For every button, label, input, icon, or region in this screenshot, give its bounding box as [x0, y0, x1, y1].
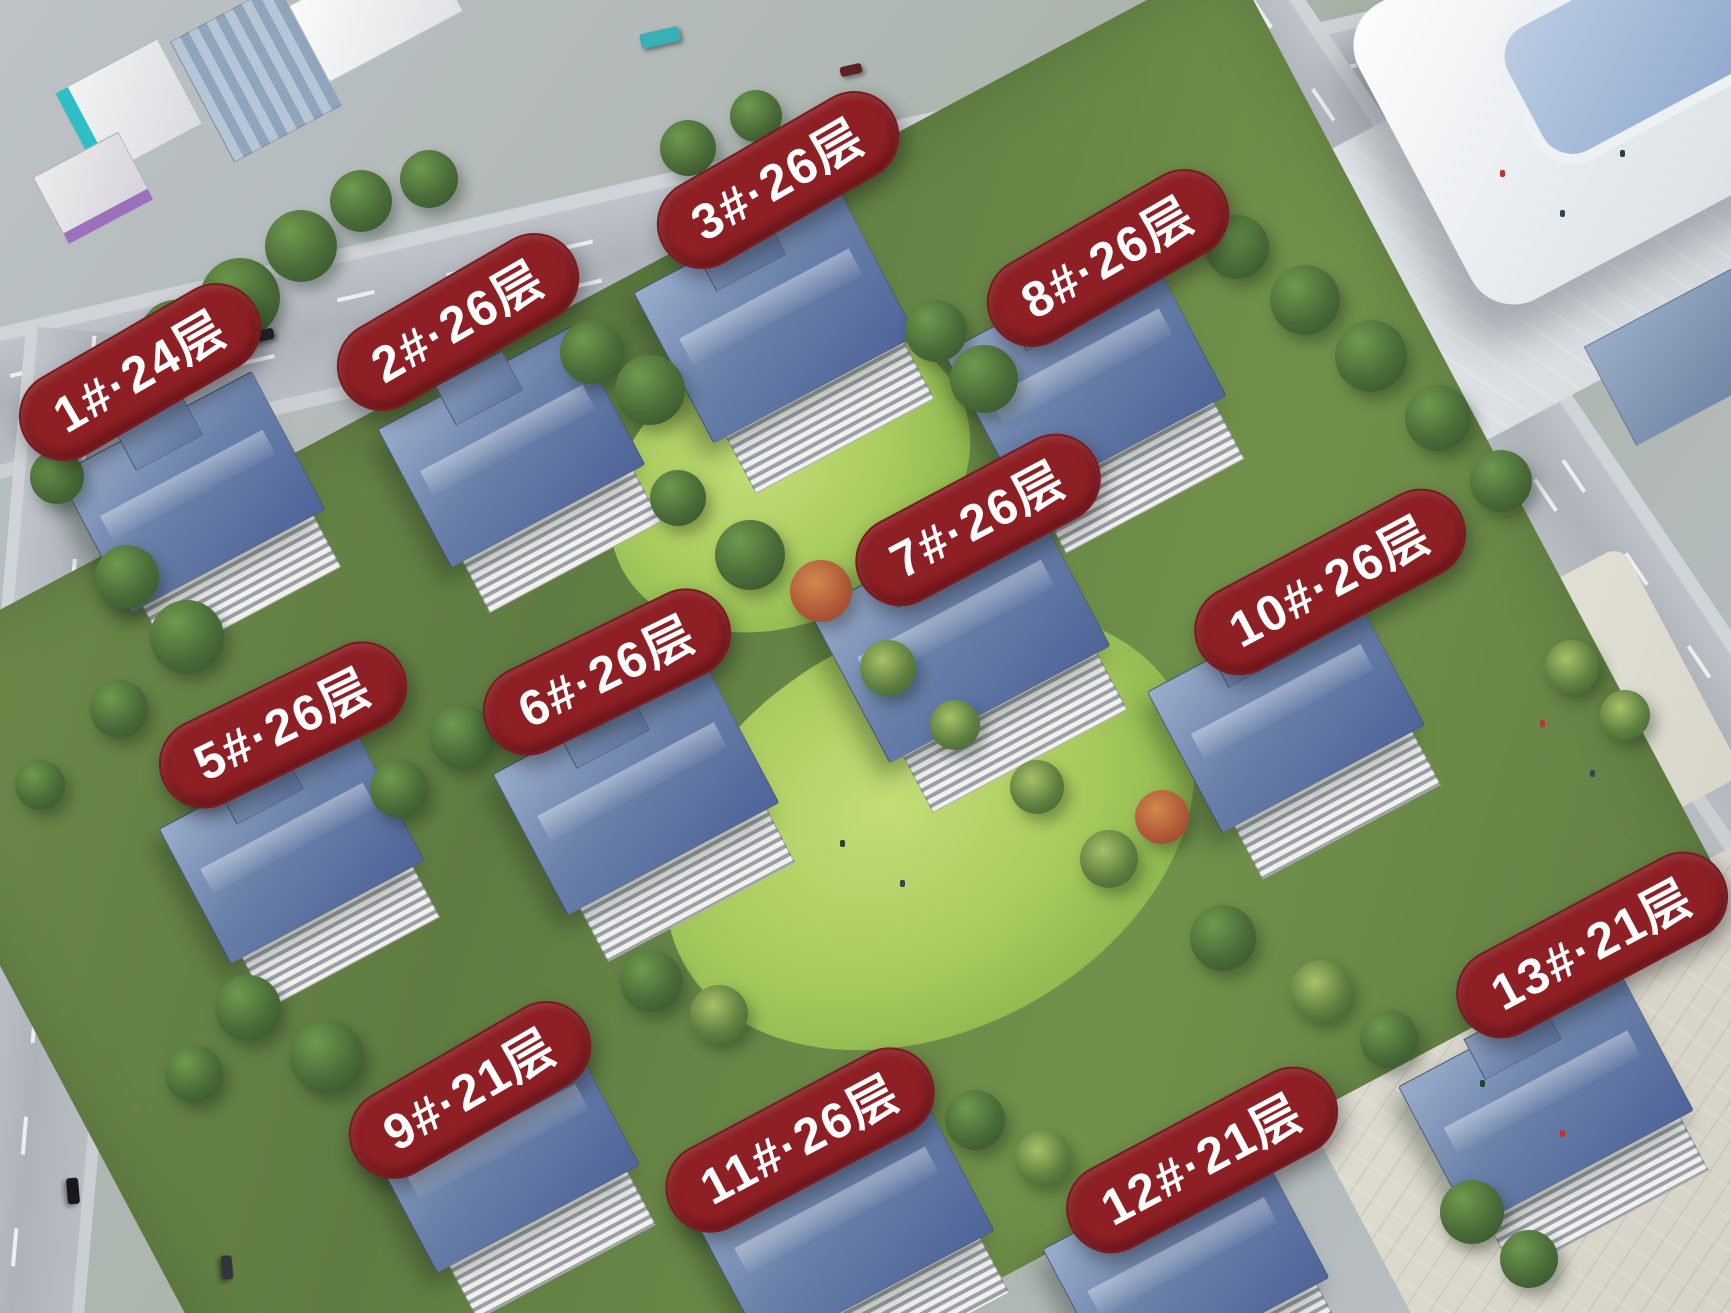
tree — [650, 470, 706, 526]
tree — [150, 600, 224, 674]
palm-tree — [1545, 640, 1599, 694]
tree — [715, 520, 785, 590]
tree — [615, 355, 685, 425]
pedestrian — [1500, 170, 1505, 177]
pedestrian — [1540, 720, 1545, 727]
tree — [330, 170, 392, 232]
pedestrian — [1590, 770, 1595, 777]
tree — [290, 1020, 364, 1094]
palm-tree — [1015, 1130, 1071, 1186]
car — [839, 63, 863, 78]
car — [220, 1255, 233, 1280]
palm-tree — [1010, 760, 1064, 814]
palm-tree — [1290, 960, 1352, 1022]
tree — [560, 320, 624, 384]
tree — [370, 760, 428, 818]
tree — [1360, 1010, 1418, 1068]
pedestrian — [1480, 1080, 1485, 1087]
tree — [1470, 450, 1532, 512]
palm-tree — [930, 700, 980, 750]
car — [66, 1178, 80, 1205]
pedestrian — [1560, 1130, 1565, 1137]
pedestrian — [840, 840, 845, 847]
tree — [1270, 265, 1340, 335]
tree — [165, 1045, 223, 1103]
tree — [215, 975, 281, 1041]
tree — [265, 210, 337, 282]
autumn-tree — [790, 560, 852, 622]
tree — [15, 760, 65, 810]
tree — [1190, 905, 1256, 971]
pedestrian — [1620, 150, 1625, 157]
tree — [1405, 385, 1471, 451]
autumn-tree — [1135, 790, 1189, 844]
bus — [639, 26, 681, 50]
tree — [400, 150, 458, 208]
tree — [905, 300, 967, 362]
tree — [1335, 320, 1407, 392]
tree — [95, 545, 159, 609]
mall-skylight — [1479, 0, 1731, 179]
masterplan-aerial-view: 1#·24层 2#·26层 3#·26层 8#·26层 7#·26层 10#·2… — [0, 0, 1731, 1313]
tree — [950, 345, 1018, 413]
pedestrian — [1560, 210, 1565, 217]
tree — [1440, 1180, 1504, 1244]
tree — [1500, 1230, 1558, 1288]
palm-tree — [860, 640, 916, 696]
pedestrian — [900, 880, 905, 887]
tree — [620, 950, 682, 1012]
tree — [945, 1090, 1005, 1150]
palm-tree — [1080, 830, 1138, 888]
tree — [90, 680, 148, 738]
palm-tree — [690, 985, 748, 1043]
palm-tree — [1600, 690, 1650, 740]
